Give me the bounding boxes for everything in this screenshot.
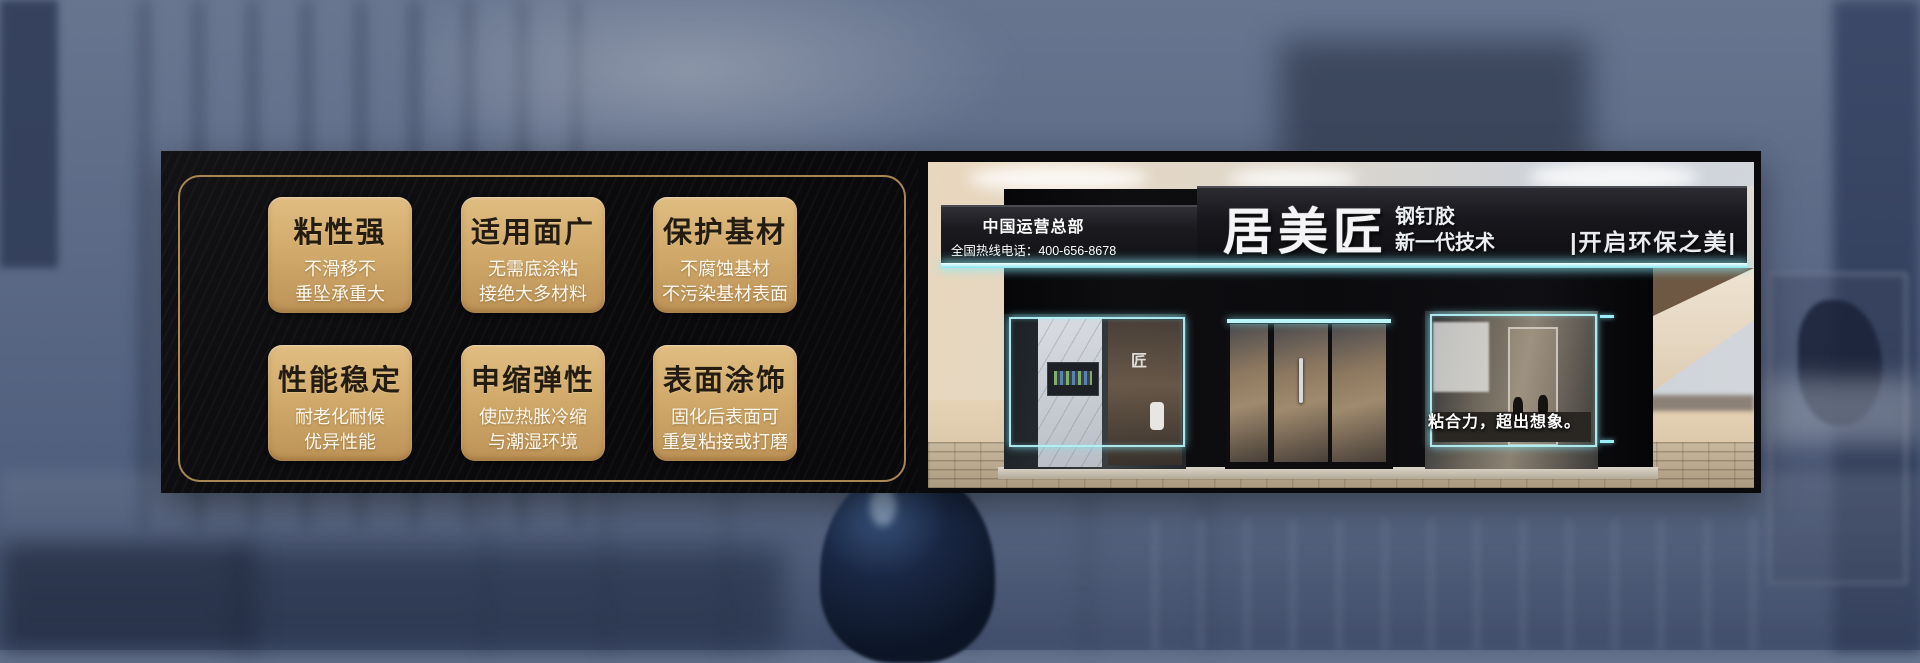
feature-card-3: 保护基材 不腐蚀基材 不污染基材表面 <box>653 197 797 313</box>
led-dash <box>1600 315 1614 318</box>
feature-line: 不滑移不 <box>304 259 376 279</box>
background-slab <box>0 0 58 268</box>
brand-subtitle-2: 新一代技术 <box>1395 230 1495 256</box>
feature-card-2: 适用面广 无需底涂粘 接绝大多材料 <box>461 197 605 313</box>
feature-line: 与潮湿环境 <box>488 432 578 452</box>
feature-line: 重复粘接或打磨 <box>662 432 788 452</box>
background-dark-band <box>1280 40 1590 165</box>
feature-line: 不腐蚀基材 <box>680 259 770 279</box>
brand-name: 居美匠 <box>1223 192 1388 264</box>
feature-card-4: 性能稳定 耐老化耐候 优异性能 <box>268 345 412 461</box>
feature-title: 粘性强 <box>293 209 386 251</box>
hq-hotline: 全国热线电话：400-656-8678 <box>951 240 1116 259</box>
background-table-shadow <box>238 548 783 650</box>
feature-title: 性能稳定 <box>278 357 402 399</box>
window-slogan: 粘合力，超出想象。 <box>1428 408 1581 432</box>
feature-card-1: 粘性强 不滑移不 垂坠承重大 <box>268 197 412 313</box>
feature-card-5: 申缩弹性 使应热胀冷缩 与潮湿环境 <box>461 345 605 461</box>
feature-line: 垂坠承重大 <box>295 284 385 304</box>
background-floor <box>0 472 1920 650</box>
door-sidelight[interactable] <box>1230 324 1268 462</box>
feature-line: 固化后表面可 <box>671 407 779 427</box>
sign-slogan: |开启环保之美| <box>1570 223 1737 257</box>
hq-title: 中国运营总部 <box>982 213 1084 237</box>
background-picture-frame <box>1768 272 1908 585</box>
feature-card-6: 表面涂饰 固化后表面可 重复粘接或打磨 <box>653 345 797 461</box>
background-reflections <box>1150 518 1775 650</box>
background-corner-shadow <box>0 543 255 650</box>
door-leaf-right[interactable] <box>1332 324 1386 462</box>
hq-text-block: 中国运营总部 全国热线电话：400-656-8678 <box>941 207 1126 265</box>
promo-banner: 粘性强 不滑移不 垂坠承重大 适用面广 无需底涂粘 接绝大多材料 保护基材 不腐… <box>161 151 1761 493</box>
sign-edge-sliver <box>1747 186 1754 268</box>
led-strip-door <box>1227 319 1391 323</box>
background-pale-band <box>1763 378 1920 444</box>
storefront-photo: 中国运营总部 全国热线电话：400-656-8678 居美匠 钢钉胶 新一代技术… <box>928 162 1754 488</box>
background-right-wall <box>1833 0 1920 650</box>
sign-main-section: 居美匠 钢钉胶 新一代技术 |开启环保之美| <box>1197 186 1747 265</box>
led-strip-sign <box>941 263 1747 268</box>
cloud <box>968 164 1148 192</box>
feature-line: 接绝大多材料 <box>479 284 587 304</box>
feature-title: 表面涂饰 <box>663 357 787 399</box>
feature-title: 适用面广 <box>471 209 595 251</box>
led-outline-left-window <box>1009 317 1185 447</box>
led-dash <box>1600 440 1614 443</box>
background-plant-silhouette <box>1798 300 1882 425</box>
horizon-wall <box>1646 395 1754 411</box>
feature-line: 优异性能 <box>304 432 376 452</box>
brand-subtitle-1: 钢钉胶 <box>1395 204 1495 230</box>
door-handle[interactable] <box>1299 358 1303 403</box>
feature-line: 使应热胀冷缩 <box>479 407 587 427</box>
feature-line: 无需底涂粘 <box>488 259 578 279</box>
feature-title: 申缩弹性 <box>471 357 595 399</box>
sign-left-section: 中国运营总部 全国热线电话：400-656-8678 <box>941 205 1197 265</box>
feature-title: 保护基材 <box>663 209 787 251</box>
background-vase-silhouette <box>820 468 995 663</box>
feature-line: 不污染基材表面 <box>662 284 788 304</box>
feature-panel: 粘性强 不滑移不 垂坠承重大 适用面广 无需底涂粘 接绝大多材料 保护基材 不腐… <box>161 151 918 493</box>
feature-line: 耐老化耐候 <box>295 407 385 427</box>
